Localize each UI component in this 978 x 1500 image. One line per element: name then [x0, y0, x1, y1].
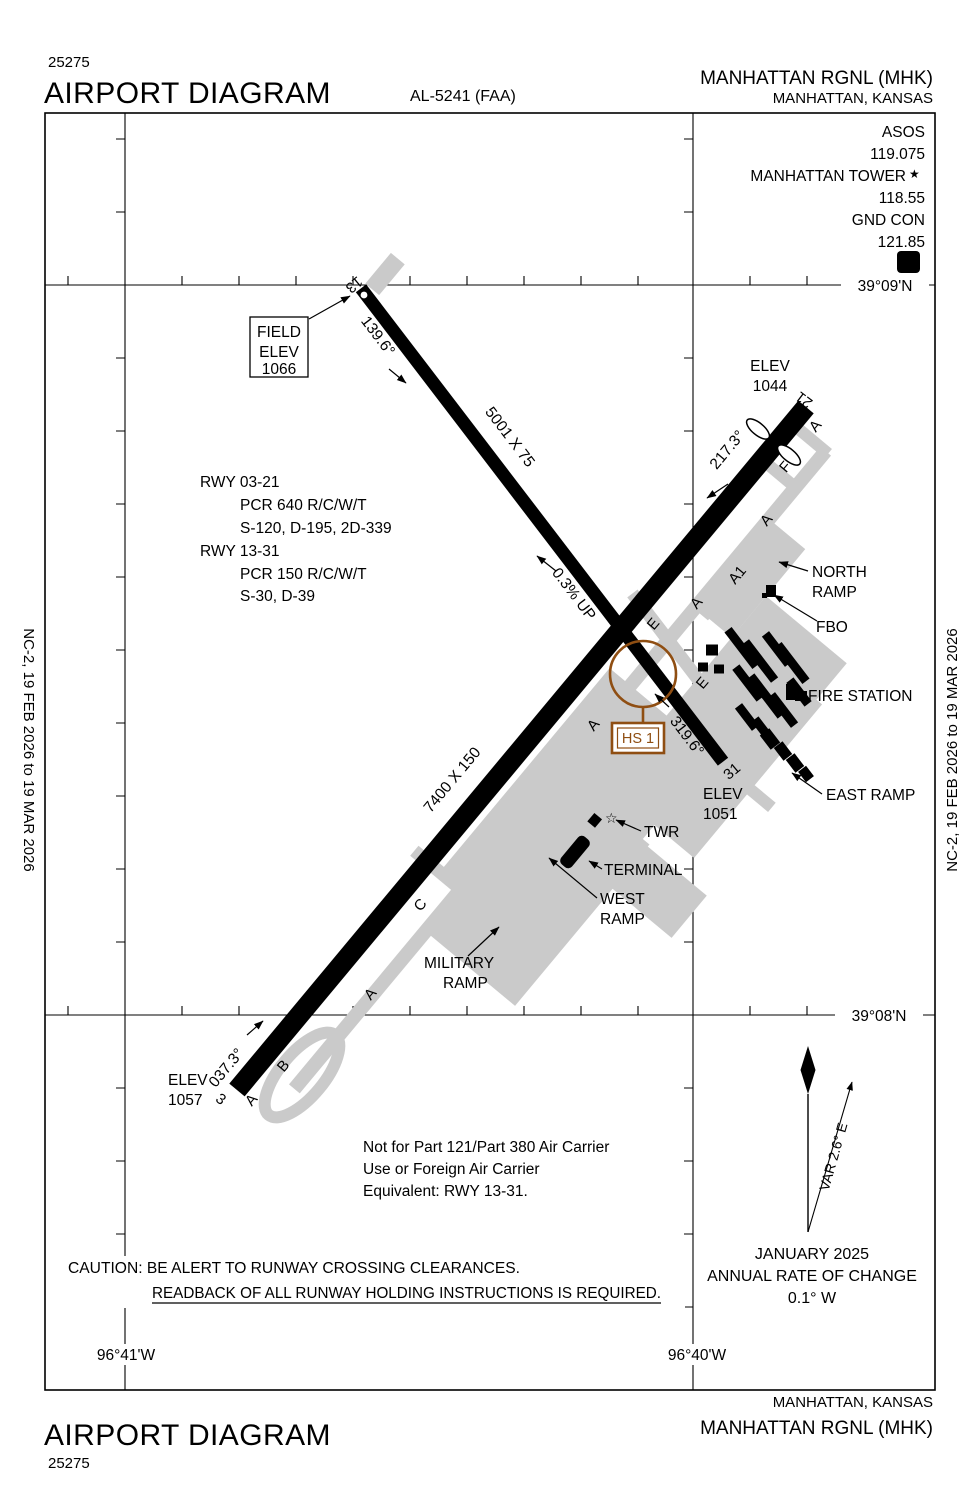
gnd-con-frequency: 121.85	[878, 234, 925, 251]
rwy-21-heading: 217.3°	[707, 427, 749, 472]
tower-frequency: 118.55	[879, 190, 925, 207]
chart-number-top: 25275	[48, 54, 90, 71]
elev-1051-value: 1051	[703, 806, 737, 823]
compass-rose: VAR 2.6° E JANUARY 2025 ANNUAL RATE OF C…	[707, 1046, 917, 1307]
field-elev-arrow	[309, 296, 350, 319]
caution-line-1: CAUTION: BE ALERT TO RUNWAY CROSSING CLE…	[68, 1260, 520, 1277]
elev-1044-value: 1044	[753, 378, 788, 395]
caution-line-2: READBACK OF ALL RUNWAY HOLDING INSTRUCTI…	[152, 1285, 661, 1302]
caution-note: CAUTION: BE ALERT TO RUNWAY CROSSING CLE…	[60, 1256, 685, 1308]
runway-data-block: RWY 03-21 PCR 640 R/C/W/T S-120, D-195, …	[200, 474, 392, 605]
hot-spot-label: HS 1	[622, 731, 654, 747]
lon-96-40: 96°40'W	[668, 1347, 727, 1364]
rwy-data-line-0: RWY 03-21	[200, 474, 280, 491]
elev-1051-line1: ELEV	[703, 786, 743, 803]
rwy-3-number: 3	[212, 1090, 229, 1109]
slope-arrow	[537, 556, 556, 571]
part121-line-3: Equivalent: RWY 13-31.	[363, 1183, 528, 1200]
chart-number-bottom: 25275	[48, 1455, 90, 1472]
airport-city-bottom: MANHATTAN, KANSAS	[773, 1394, 933, 1411]
gnd-con-label: GND CON	[852, 212, 925, 229]
true-north-arrow	[801, 1046, 816, 1094]
east-ramp-label: EAST RAMP	[826, 787, 915, 804]
variation-date: JANUARY 2025	[755, 1246, 869, 1263]
rwy-data-line-1: PCR 640 R/C/W/T	[240, 497, 367, 514]
fire-station-label: FIRE STATION	[808, 688, 912, 705]
page-title-bottom: AIRPORT DIAGRAM	[44, 1419, 331, 1452]
asos-label: ASOS	[882, 124, 925, 141]
north-ramp-label-2: RAMP	[812, 584, 857, 601]
military-ramp-label-2: RAMP	[443, 975, 488, 992]
tower-label: MANHATTAN TOWER	[750, 168, 906, 185]
twr-label: TWR	[644, 824, 679, 841]
part121-line-1: Not for Part 121/Part 380 Air Carrier	[363, 1139, 609, 1156]
comm-frequencies: ASOS 119.075 MANHATTAN TOWER ★ 118.55 GN…	[750, 124, 925, 273]
tower-star-icon: ★	[909, 167, 920, 181]
hotspot-legend-letter: D	[903, 255, 915, 272]
lat-39-08: 39°08'N	[852, 1008, 907, 1025]
diagram-canvas: 25275 AIRPORT DIAGRAM AL-5241 (FAA) MANH…	[0, 0, 978, 1500]
field-elev-value: 1066	[262, 361, 296, 378]
field-elev-line1: FIELD	[257, 324, 301, 341]
runway-13-threshold-dot	[361, 292, 368, 299]
variation-rate-value: 0.1° W	[788, 1290, 837, 1307]
variation-rate-label: ANNUAL RATE OF CHANGE	[707, 1268, 917, 1285]
fbo-label: FBO	[816, 619, 848, 636]
airport-name-bottom: MANHATTAN RGNL (MHK)	[700, 1418, 933, 1439]
al-number: AL-5241 (FAA)	[410, 88, 516, 105]
terminal-label: TERMINAL	[604, 862, 683, 879]
part121-line-2: Use or Foreign Air Carrier	[363, 1161, 540, 1178]
left-margin-cycle-note: NC-2, 19 FEB 2026 to 19 MAR 2026	[20, 628, 37, 871]
header: 25275 AIRPORT DIAGRAM AL-5241 (FAA) MANH…	[44, 54, 933, 110]
footer: AIRPORT DIAGRAM 25275 MANHATTAN, KANSAS …	[44, 1394, 933, 1472]
rwy-data-line-4: PCR 150 R/C/W/T	[240, 566, 367, 583]
airport-diagram-page: 25275 AIRPORT DIAGRAM AL-5241 (FAA) MANH…	[0, 0, 978, 1500]
elev-1044-line1: ELEV	[750, 358, 790, 375]
rwy-data-line-3: RWY 13-31	[200, 543, 280, 560]
elev-1057-line1: ELEV	[168, 1072, 208, 1089]
west-ramp-label-2: RAMP	[600, 911, 645, 928]
lat-39-09: 39°09'N	[858, 278, 913, 295]
lon-96-41: 96°41'W	[97, 1347, 156, 1364]
hdg-037-arrow	[247, 1021, 263, 1035]
taxiway-label-c: C	[411, 895, 431, 914]
airport-city-top: MANHATTAN, KANSAS	[773, 90, 933, 107]
north-ramp-label-1: NORTH	[812, 564, 867, 581]
field-elev-box: FIELD ELEV 1066	[250, 317, 308, 378]
page-title: AIRPORT DIAGRAM	[44, 77, 331, 110]
military-ramp-label-1: MILITARY	[424, 955, 494, 972]
variation-label: VAR 2.6° E	[816, 1121, 851, 1193]
west-ramp-label-1: WEST	[600, 891, 645, 908]
part121-note: Not for Part 121/Part 380 Air Carrier Us…	[363, 1139, 609, 1200]
airport-name-top: MANHATTAN RGNL (MHK)	[700, 68, 933, 89]
right-margin-cycle-note: NC-2, 19 FEB 2026 to 19 MAR 2026	[944, 628, 961, 871]
field-elev-line2: ELEV	[259, 344, 299, 361]
rwy-data-line-2: S-120, D-195, 2D-339	[240, 520, 392, 537]
runway-13-31	[356, 284, 728, 765]
rwy13-end-stub	[365, 253, 404, 295]
tower-star-symbol: ☆	[605, 810, 618, 826]
asos-frequency: 119.075	[870, 146, 925, 163]
rwy-data-line-5: S-30, D-39	[240, 588, 315, 605]
elev-1057-value: 1057	[168, 1092, 202, 1109]
taxiway-label-a6: A	[242, 1091, 261, 1110]
hdg-139-arrow	[389, 369, 406, 383]
